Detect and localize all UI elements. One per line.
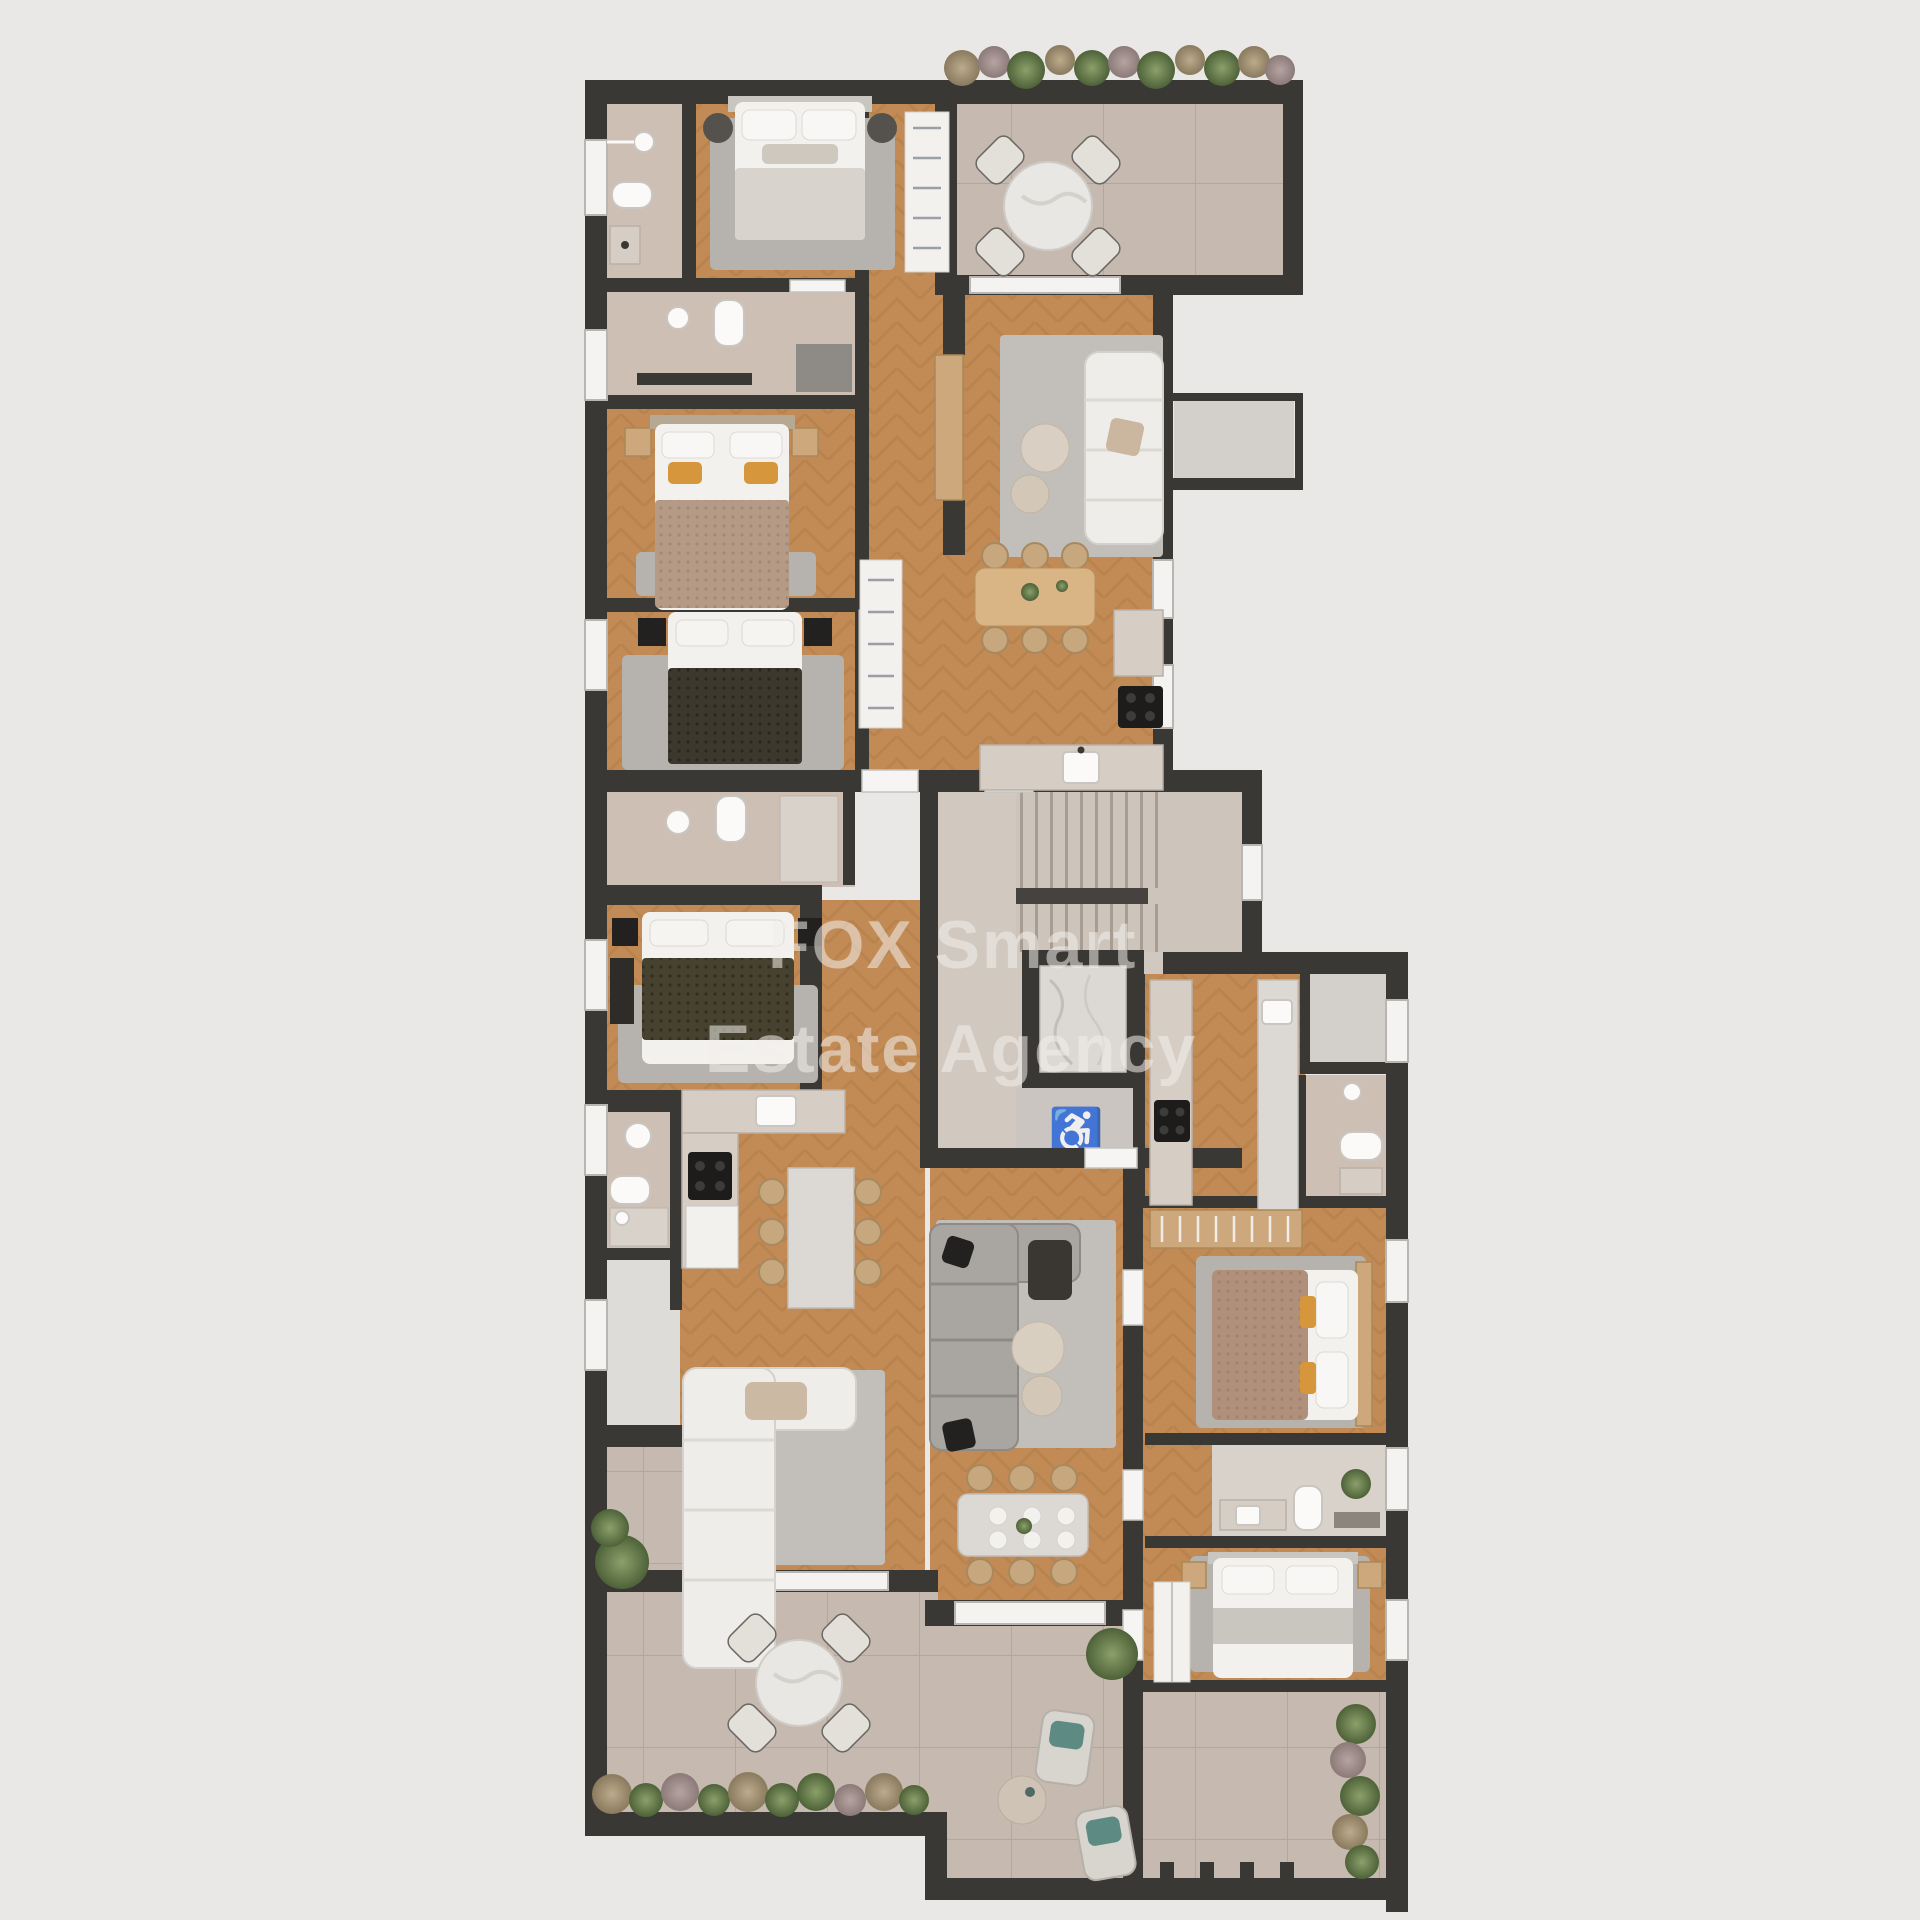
sink: [1262, 1000, 1292, 1024]
nightstand: [638, 618, 666, 646]
closet-bedroom1: [905, 112, 949, 272]
wall-bottom: [925, 1878, 1408, 1900]
toilet: [1294, 1486, 1322, 1530]
chair: [1009, 1465, 1035, 1491]
chair: [1022, 543, 1048, 569]
window: [585, 330, 607, 400]
chair: [1051, 1559, 1077, 1585]
headboard: [1356, 1262, 1372, 1426]
chair: [1051, 1465, 1077, 1491]
wall-living1-west-upper: [943, 275, 965, 355]
accent-pillow: [744, 462, 778, 484]
toilet: [714, 300, 744, 346]
corridor-cabinet: [935, 355, 963, 500]
open-wardrobe: [1150, 1210, 1302, 1248]
wall-bathroom2-inner: [637, 373, 752, 385]
lounge-chair: [1034, 1709, 1096, 1788]
wall-balcony2-bottom: [1300, 1062, 1386, 1074]
lounge-chair: [1074, 1804, 1137, 1882]
shrub: [1086, 1628, 1138, 1680]
toilet: [612, 182, 652, 208]
toilet: [716, 796, 746, 842]
pillow: [730, 432, 782, 458]
kitchen-island: [788, 1168, 854, 1308]
toilet: [610, 1176, 650, 1204]
wall-left-step: [585, 1425, 692, 1447]
pillow: [1316, 1352, 1348, 1408]
wall-bedroomA-bottom: [1145, 1433, 1386, 1445]
door-bathroomB: [1123, 1470, 1143, 1520]
floor-plan-render: ♿: [0, 0, 1920, 1920]
pouf: [1011, 475, 1049, 513]
pillow: [1286, 1566, 1338, 1594]
cooktop: [688, 1152, 732, 1200]
bedroom3: [622, 612, 844, 770]
parapet-tooth: [1280, 1862, 1294, 1878]
sink: [625, 1123, 651, 1149]
plant: [1341, 1469, 1371, 1499]
nightstand: [703, 113, 733, 143]
coffee-table: [1022, 1376, 1062, 1416]
sink: [666, 810, 690, 834]
throw-blanket: [1028, 1240, 1072, 1300]
window: [585, 1105, 607, 1175]
toilet: [1340, 1132, 1382, 1160]
window: [1386, 1000, 1408, 1062]
door-apartment2-entry: [862, 770, 918, 792]
wall-kitchen3-west: [1133, 974, 1145, 1208]
cooktop: [1154, 1100, 1190, 1142]
stool: [759, 1219, 785, 1245]
bedroomB: [1154, 1552, 1382, 1682]
cabinet: [1114, 610, 1163, 676]
sink: [1063, 752, 1099, 783]
window: [1242, 845, 1262, 900]
wall-rightwing-east: [1386, 952, 1408, 1912]
pillow: [676, 620, 728, 646]
wall-bathroom2-bottom: [607, 395, 857, 409]
nightstand: [792, 428, 818, 456]
window: [585, 940, 607, 1010]
chair: [1009, 1559, 1035, 1585]
chair: [1062, 627, 1088, 653]
door-apartment3-entry: [1085, 1148, 1137, 1168]
round-table: [756, 1640, 842, 1726]
chair: [1062, 543, 1088, 569]
pillow: [650, 920, 708, 946]
fridge: [686, 1206, 738, 1268]
balcony-upper-right: [1174, 398, 1294, 478]
window: [1386, 1600, 1408, 1660]
wall-balcony-right: [1295, 393, 1303, 490]
wall-terrace-right: [1283, 80, 1303, 295]
watermark-line2: Estate Agency: [705, 1011, 1197, 1087]
living1: [1000, 335, 1163, 557]
sink: [667, 307, 689, 329]
duvet: [735, 168, 865, 240]
stair-void: [1016, 888, 1148, 904]
sliding-door-terrace-center: [955, 1602, 1105, 1624]
wall-bedroom4-top: [607, 885, 822, 905]
pillow: [802, 110, 856, 140]
chair: [1022, 627, 1048, 653]
dining1: [975, 543, 1095, 653]
shower-head: [615, 1211, 629, 1225]
nightstand: [625, 428, 651, 456]
shower: [780, 796, 838, 882]
bath-mat: [1334, 1512, 1380, 1528]
chair: [982, 543, 1008, 569]
accent-pillow: [1300, 1362, 1316, 1394]
dining3: [958, 1465, 1088, 1585]
table-plant: [1056, 580, 1068, 592]
stool: [855, 1179, 881, 1205]
wall-bathroom3-east: [843, 792, 855, 885]
chair: [982, 627, 1008, 653]
wall-lobby-bottom: [920, 1148, 1242, 1168]
pillow: [1316, 1282, 1348, 1338]
wall-bathroom4-east: [670, 1112, 682, 1310]
parapet-tooth: [1240, 1862, 1254, 1878]
window: [585, 140, 607, 215]
accent-pillow: [668, 462, 702, 484]
stool: [759, 1259, 785, 1285]
pillow: [662, 432, 714, 458]
accent-pillow: [762, 144, 838, 164]
desk: [610, 958, 634, 1024]
pillow: [1222, 1566, 1274, 1594]
parapet-tooth: [1200, 1862, 1214, 1878]
wall-living1-west-lower: [943, 500, 965, 555]
shower-head: [634, 132, 654, 152]
wall-balcony-bottom: [1153, 478, 1303, 490]
watermark-line1: FOX Smart: [768, 907, 1137, 983]
wall-rightwing-top: [1163, 952, 1408, 974]
window: [1386, 1448, 1408, 1510]
shrub: [591, 1509, 629, 1547]
door-bedroomA: [1123, 1270, 1143, 1325]
parapet-tooth: [1160, 1862, 1174, 1878]
wall-bathroomB-bottom: [1145, 1536, 1386, 1548]
cushion: [941, 1417, 977, 1453]
nightstand: [867, 113, 897, 143]
side-table: [998, 1776, 1046, 1824]
stool: [855, 1219, 881, 1245]
shower-head: [1343, 1083, 1361, 1101]
window: [585, 620, 607, 690]
balcony-right-wing: [1310, 974, 1386, 1062]
wall-balcony-top: [1173, 393, 1303, 401]
throw-blanket: [745, 1382, 807, 1420]
pillow: [742, 110, 796, 140]
pillow: [742, 620, 794, 646]
coffee-table: [1012, 1322, 1064, 1374]
sink: [756, 1096, 796, 1126]
wall-bathroom1-east: [682, 104, 696, 280]
chair: [967, 1559, 993, 1585]
corridor1-closet: [860, 560, 902, 728]
chair: [967, 1465, 993, 1491]
vanity: [1340, 1168, 1382, 1194]
stair-flight-upper: [1016, 788, 1162, 888]
window: [1386, 1240, 1408, 1302]
storage-room-floor: [607, 1260, 680, 1445]
nightstand: [804, 618, 832, 646]
accent-pillow: [1300, 1296, 1316, 1328]
table-plant: [1021, 583, 1039, 601]
table-plant: [1016, 1518, 1032, 1534]
living3: [930, 1220, 1116, 1453]
shower-tray: [796, 344, 852, 392]
wall-left: [585, 80, 607, 1445]
round-table: [1004, 162, 1092, 250]
bedroom1: [703, 96, 897, 270]
stool: [855, 1259, 881, 1285]
throw-band: [1213, 1608, 1353, 1644]
floor-plan-svg: ♿: [0, 0, 1920, 1920]
nightstand: [612, 918, 638, 946]
wall-balcony2-divider: [1300, 974, 1310, 1062]
pouf: [1021, 424, 1069, 472]
window: [585, 1300, 607, 1370]
nightstand: [1358, 1562, 1382, 1588]
cooktop: [1118, 686, 1163, 728]
stool: [759, 1179, 785, 1205]
sliding-door-terrace-top: [970, 277, 1120, 293]
sink: [1236, 1506, 1260, 1525]
cushion: [1105, 417, 1145, 457]
door-bedroom1: [790, 280, 845, 292]
